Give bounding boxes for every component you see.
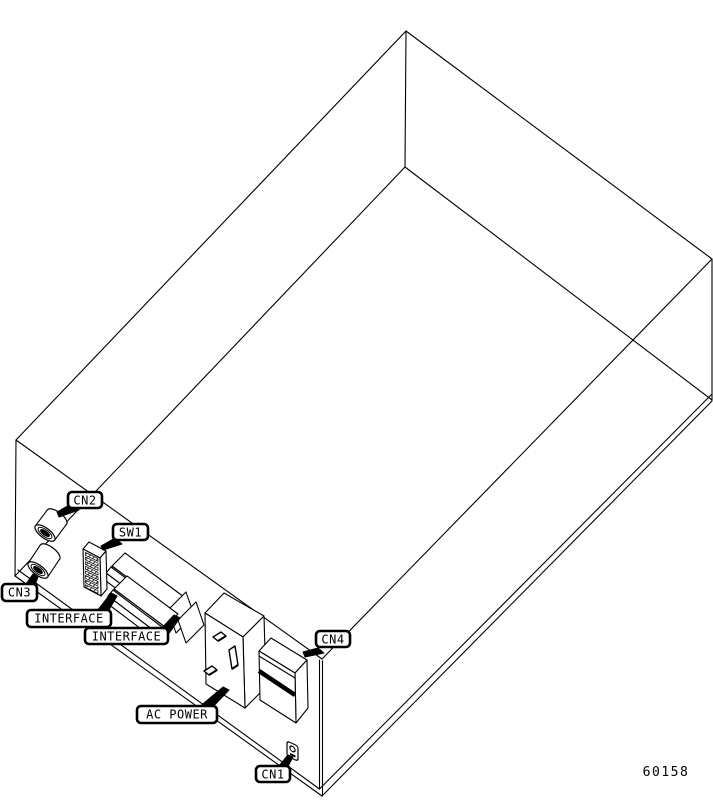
callout-interface-lower: INTERFACE: [85, 628, 168, 644]
callout-cn2-text: CN2: [73, 493, 96, 507]
callout-cn1-text: CN1: [261, 767, 284, 781]
callout-sw1: SW1: [113, 524, 148, 540]
chassis-wireframe: [15, 31, 712, 796]
cn3-connector: [25, 541, 62, 581]
diagram-canvas: CN2 SW1 CN3 INTERFACE INTERFACE AC POWER…: [0, 0, 713, 800]
callout-ac-power-text: AC POWER: [146, 708, 208, 722]
ac-power-outlet: [204, 593, 266, 708]
callout-interface-lower-text: INTERFACE: [92, 629, 162, 643]
callout-cn3-text: CN3: [8, 586, 31, 600]
callout-interface-upper: INTERFACE: [27, 610, 111, 627]
technical-diagram-page: CN2 SW1 CN3 INTERFACE INTERFACE AC POWER…: [0, 0, 713, 800]
callout-leaders: [26, 504, 324, 770]
callout-sw1-text: SW1: [119, 525, 142, 539]
cn4-leader: [303, 648, 324, 657]
figure-number: 60158: [643, 765, 690, 780]
cn4-connector: [259, 638, 308, 723]
callout-cn2: CN2: [68, 492, 102, 508]
callout-interface-upper-text: INTERFACE: [34, 612, 104, 626]
callout-cn4-text: CN4: [321, 632, 344, 646]
callout-cn4: CN4: [316, 631, 350, 647]
callout-ac-power: AC POWER: [137, 706, 217, 723]
callout-cn1: CN1: [256, 766, 290, 782]
callout-cn3: CN3: [2, 584, 37, 601]
